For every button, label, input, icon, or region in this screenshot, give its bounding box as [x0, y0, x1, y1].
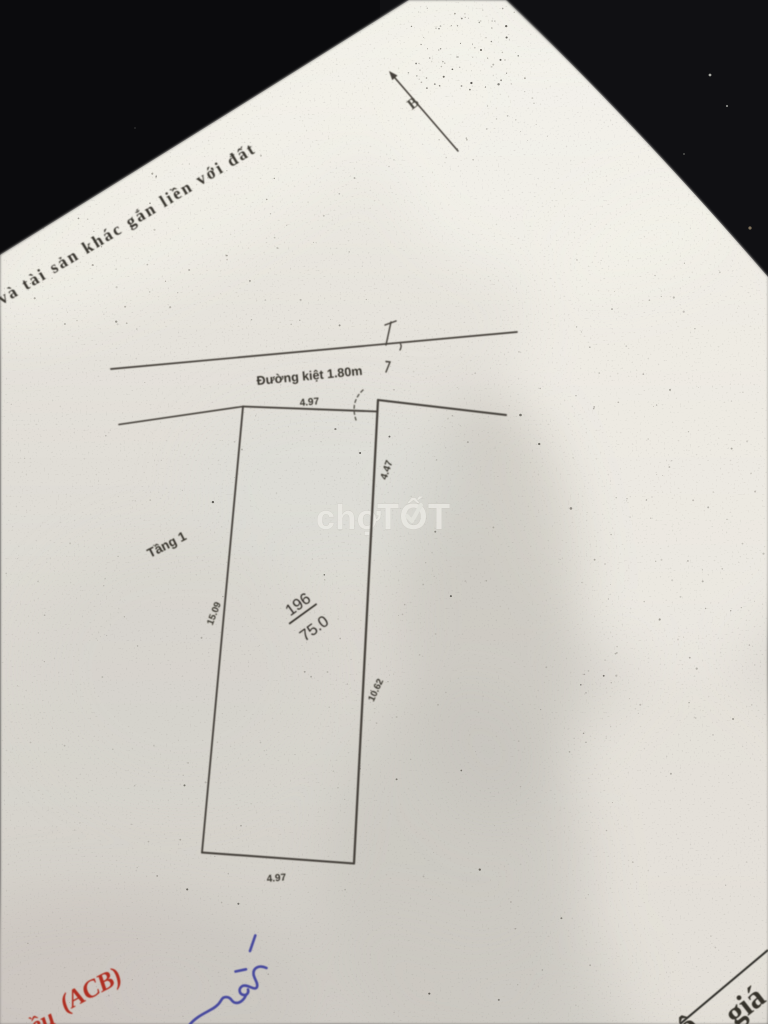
svg-text:4.97: 4.97	[299, 396, 320, 409]
svg-text:4.97: 4.97	[266, 872, 287, 885]
